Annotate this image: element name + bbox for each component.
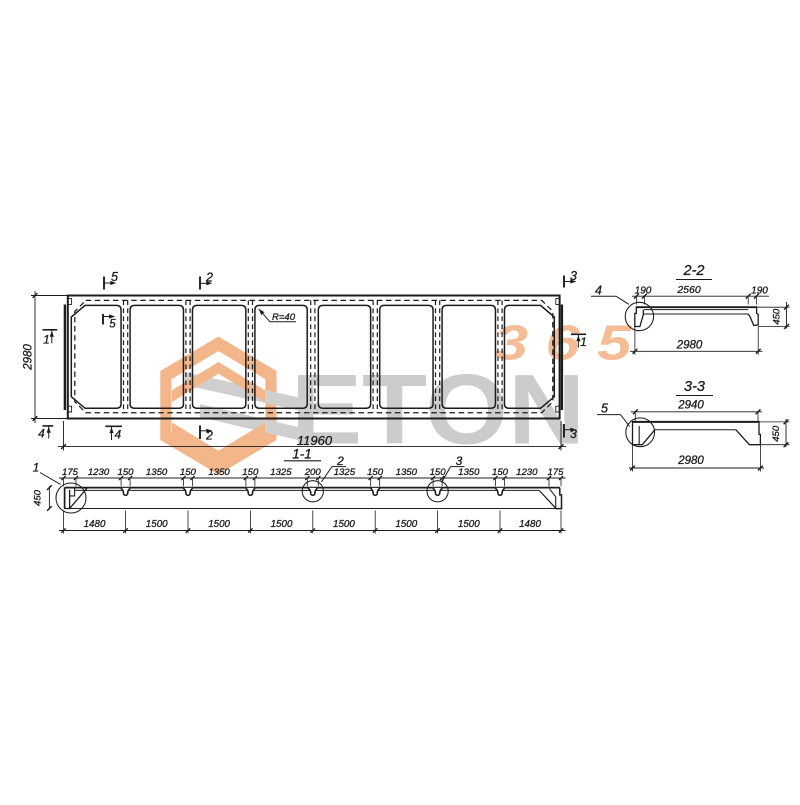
svg-text:1325: 1325 <box>334 467 356 478</box>
svg-text:1: 1 <box>580 335 587 349</box>
svg-text:1350: 1350 <box>458 467 480 478</box>
svg-text:150: 150 <box>430 467 447 478</box>
svg-text:450: 450 <box>33 489 44 506</box>
svg-text:175: 175 <box>547 467 564 478</box>
svg-text:3-3: 3-3 <box>684 379 705 395</box>
svg-text:3: 3 <box>570 427 577 441</box>
svg-text:150: 150 <box>492 467 509 478</box>
svg-text:450: 450 <box>772 308 783 325</box>
svg-text:1500: 1500 <box>333 519 355 530</box>
svg-text:2560: 2560 <box>676 284 701 296</box>
svg-text:1500: 1500 <box>146 519 168 530</box>
svg-text:1480: 1480 <box>519 519 541 530</box>
svg-text:1480: 1480 <box>84 519 106 530</box>
svg-text:5: 5 <box>109 319 116 331</box>
svg-text:4: 4 <box>595 284 602 298</box>
svg-text:175: 175 <box>62 467 79 478</box>
svg-text:1350: 1350 <box>146 467 168 478</box>
svg-text:2: 2 <box>205 429 213 443</box>
svg-text:200: 200 <box>304 467 322 478</box>
svg-text:150: 150 <box>180 467 197 478</box>
svg-text:365: 365 <box>494 315 649 370</box>
svg-text:1500: 1500 <box>208 519 230 530</box>
svg-text:3: 3 <box>570 269 577 283</box>
svg-text:2: 2 <box>205 270 213 284</box>
svg-text:5: 5 <box>601 402 608 416</box>
svg-text:1500: 1500 <box>458 519 480 530</box>
svg-text:150: 150 <box>117 467 134 478</box>
svg-text:1325: 1325 <box>270 467 292 478</box>
svg-text:1: 1 <box>33 461 40 475</box>
svg-text:1500: 1500 <box>271 519 293 530</box>
svg-text:1500: 1500 <box>395 519 417 530</box>
svg-text:2980: 2980 <box>676 340 703 352</box>
svg-text:1350: 1350 <box>208 467 230 478</box>
svg-text:1: 1 <box>43 333 50 347</box>
svg-text:4: 4 <box>38 427 45 441</box>
svg-text:1230: 1230 <box>516 467 538 478</box>
svg-text:2980: 2980 <box>23 344 35 371</box>
svg-text:2-2: 2-2 <box>683 263 705 279</box>
svg-text:1350: 1350 <box>396 467 418 478</box>
svg-text:5: 5 <box>111 270 118 284</box>
svg-text:4: 4 <box>114 427 121 441</box>
svg-text:1-1: 1-1 <box>292 447 312 462</box>
svg-text:2940: 2940 <box>677 400 704 412</box>
svg-text:150: 150 <box>367 467 384 478</box>
svg-text:R=40: R=40 <box>272 312 296 323</box>
svg-text:190: 190 <box>751 286 768 297</box>
svg-text:1230: 1230 <box>88 467 110 478</box>
svg-text:2980: 2980 <box>677 455 704 467</box>
svg-text:190: 190 <box>635 286 652 297</box>
svg-text:150: 150 <box>242 467 259 478</box>
svg-text:450: 450 <box>771 425 782 442</box>
